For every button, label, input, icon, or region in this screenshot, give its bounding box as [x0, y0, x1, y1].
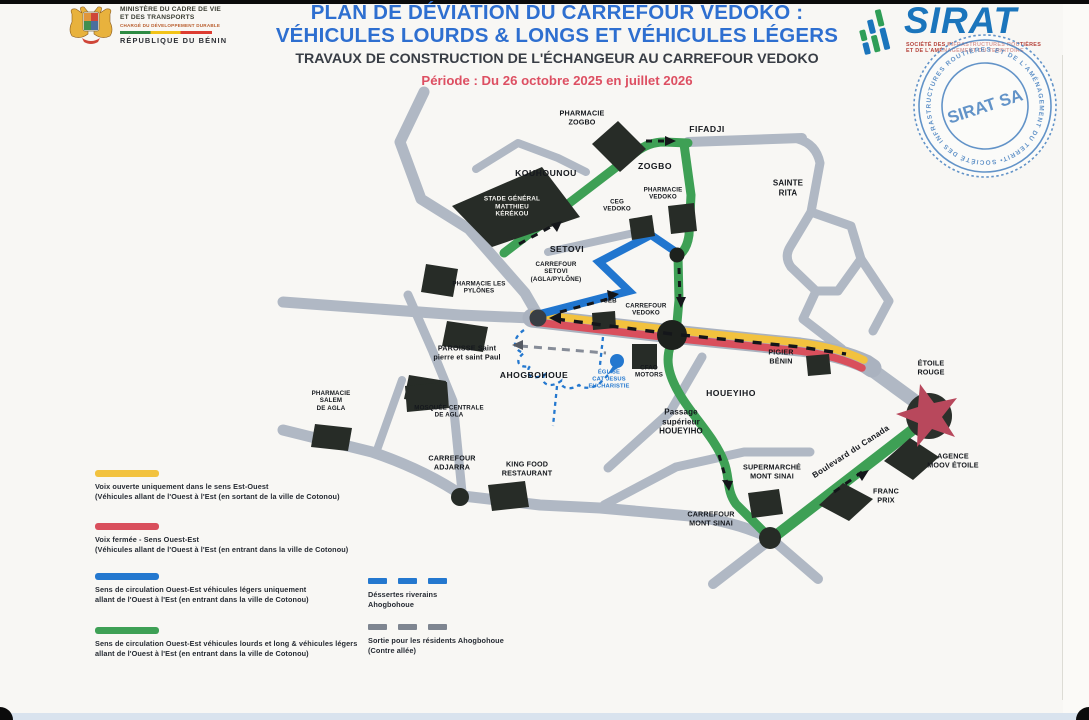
- deviation-plan-page: { "header": { "ministry": { "line1": "MI…: [0, 0, 1089, 720]
- svg-text:• SOCIÉTÉ DES INFRASTRUCTURES: • SOCIÉTÉ DES INFRASTRUCTURES ROUTIÈRES …: [11, 0, 1062, 468]
- sirat-stamp: • SOCIÉTÉ DES INFRASTRUCTURES ROUTIÈRES …: [0, 0, 1089, 720]
- stamp-ring-text: • SOCIÉTÉ DES INFRASTRUCTURES ROUTIÈRES …: [11, 0, 1062, 468]
